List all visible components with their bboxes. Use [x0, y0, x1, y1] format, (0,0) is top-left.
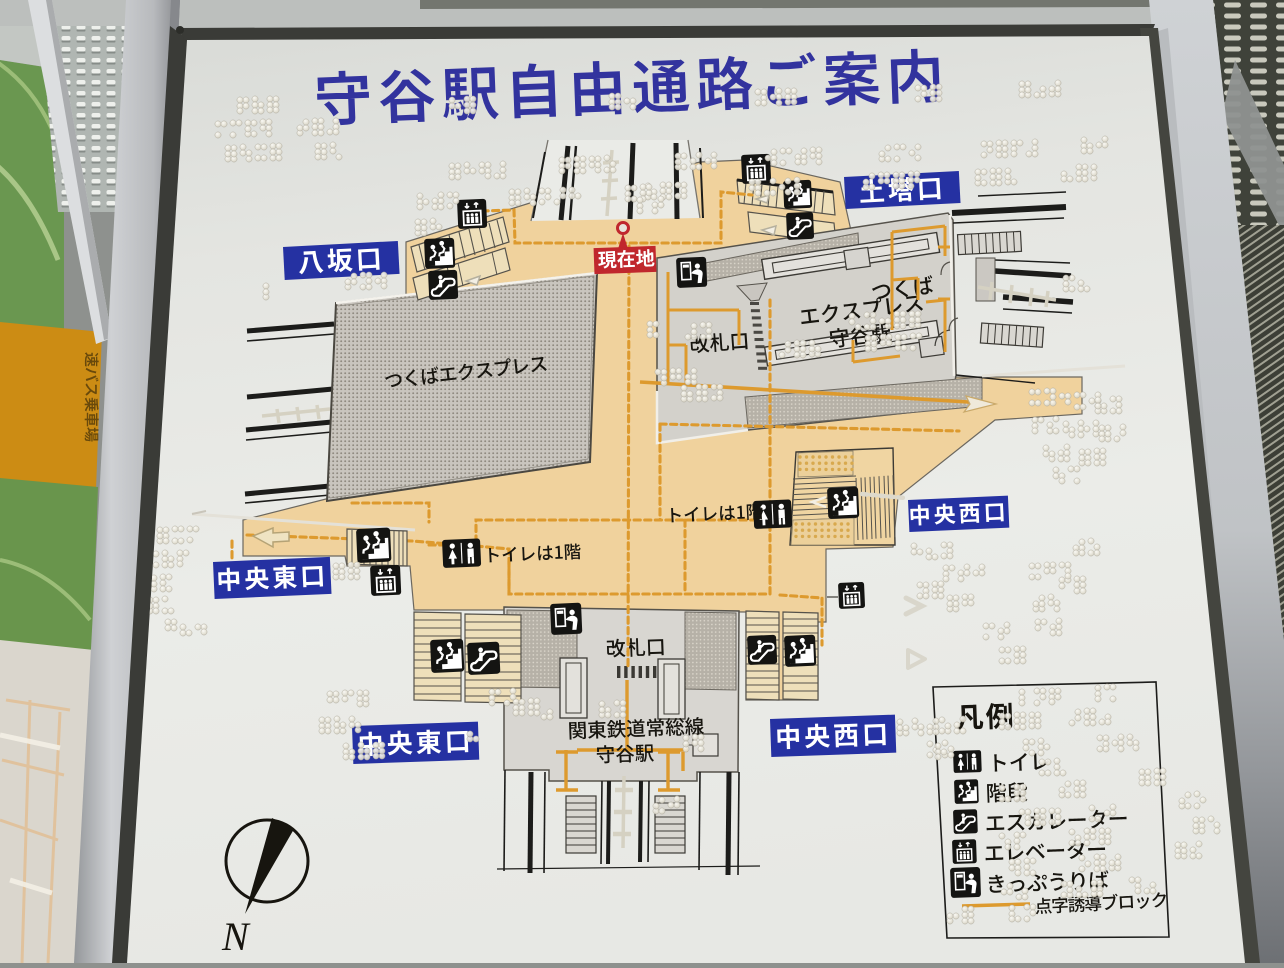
- svg-text:N: N: [221, 914, 251, 959]
